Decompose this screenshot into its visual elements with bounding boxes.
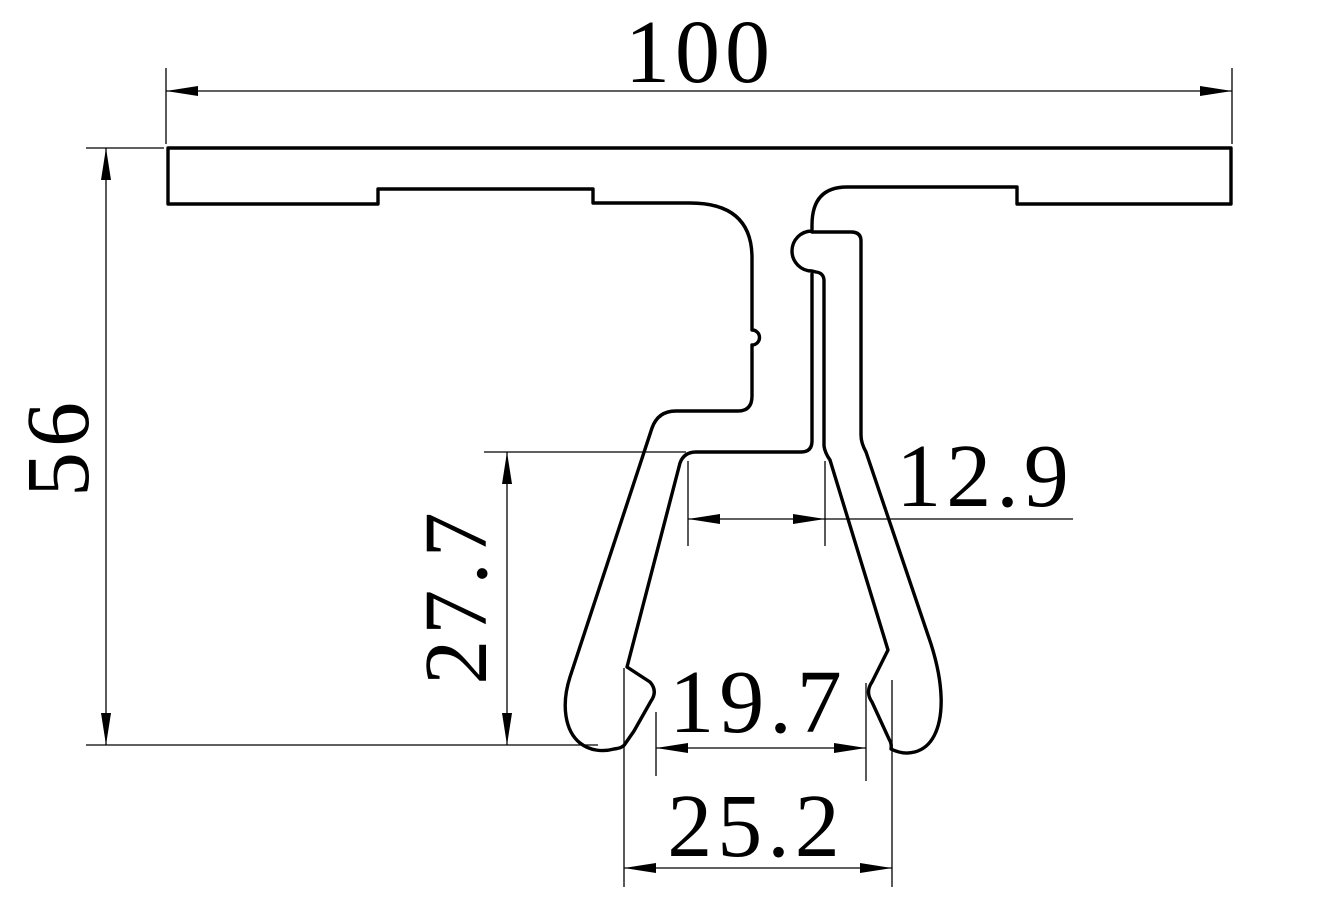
arrowhead-bottom	[101, 713, 111, 745]
dim-overall-width: 100	[166, 3, 1232, 144]
arrowhead-left	[624, 863, 656, 873]
arrowhead-left	[688, 514, 720, 524]
arrowhead-top	[101, 148, 111, 180]
dim-leg-height-label: 27.7	[407, 507, 506, 685]
dim-feet-inner-width: 19.7	[656, 653, 866, 781]
dim-overall-width-label: 100	[625, 3, 775, 102]
dim-mouth-width-label: 12.9	[896, 427, 1074, 526]
arrowhead-right	[1200, 86, 1232, 96]
arrowhead-left	[166, 86, 198, 96]
arrowhead-right	[793, 514, 825, 524]
arrowhead-right	[860, 863, 892, 873]
drawing-canvas: 100 56 27.7 12.9	[0, 0, 1323, 903]
dim-overall-height: 56	[9, 148, 598, 745]
dim-feet-inner-width-label: 19.7	[669, 653, 847, 752]
profile-drawing: 100 56 27.7 12.9	[0, 0, 1323, 903]
arrowhead-top	[502, 452, 512, 484]
dim-feet-outer-width-label: 25.2	[667, 777, 845, 876]
arrowhead-bottom	[502, 713, 512, 745]
dim-mouth-width: 12.9	[688, 427, 1074, 546]
dim-overall-height-label: 56	[9, 397, 108, 497]
